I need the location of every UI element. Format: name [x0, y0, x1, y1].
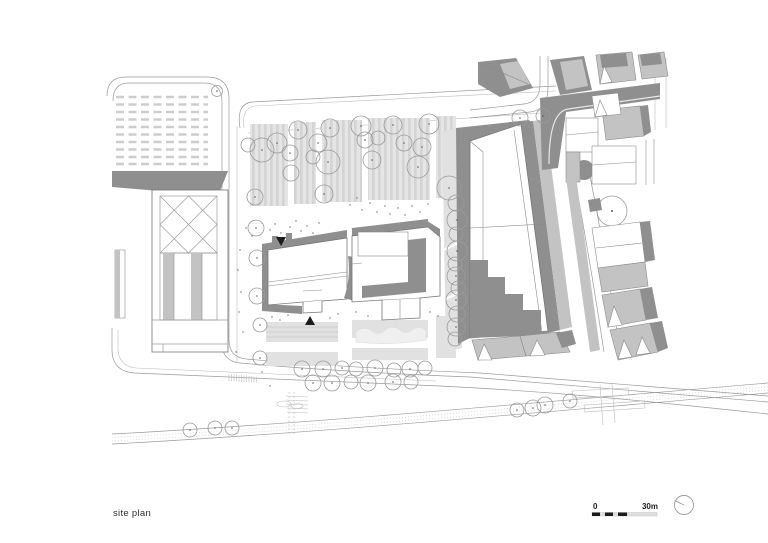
warehouse-building: [112, 171, 228, 352]
scale-bar: 0 30m: [592, 502, 658, 516]
north-dial-icon: [675, 496, 694, 515]
site-plan-drawing: site plan 0 30m: [0, 0, 768, 543]
stairs: [277, 396, 308, 413]
site-plan-page: site plan 0 30m: [0, 0, 768, 543]
freestanding-wall: [115, 250, 125, 318]
parking-stall-rows: [116, 97, 208, 164]
central-building-west: [262, 230, 347, 325]
northeast-street-blocks: [566, 176, 668, 360]
skylight-diamond: [160, 196, 217, 253]
scale-zero-label: 0: [593, 502, 598, 511]
central-building-east: [344, 219, 440, 320]
parking-lot: [116, 86, 223, 165]
drawing-caption: site plan: [113, 508, 151, 519]
entrance-marker-up: [305, 316, 315, 325]
hedge-blob: [356, 327, 426, 343]
scale-end-label: 30m: [642, 502, 658, 511]
garden-plots: [250, 116, 456, 206]
